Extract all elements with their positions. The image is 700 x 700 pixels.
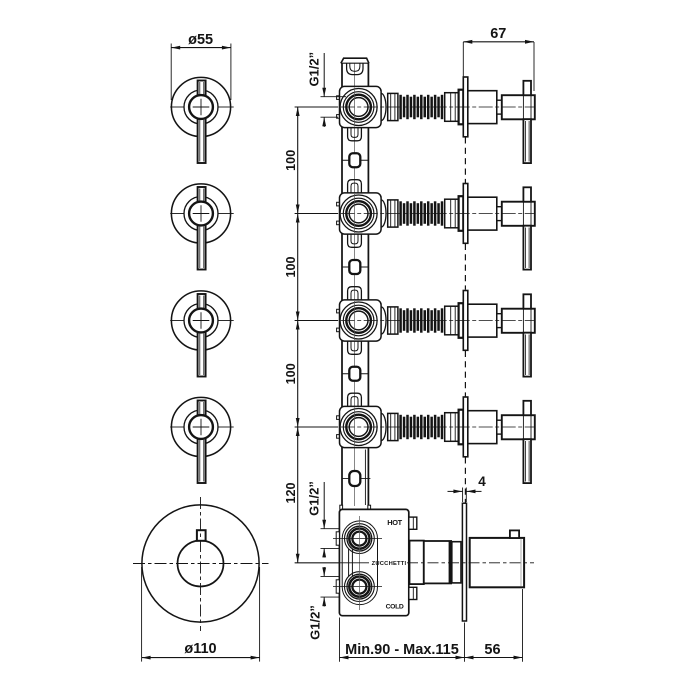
svg-text:G1/2”: G1/2”: [307, 605, 322, 640]
svg-text:ø55: ø55: [188, 32, 213, 48]
svg-text:120: 120: [284, 482, 298, 503]
svg-text:100: 100: [284, 363, 298, 384]
svg-text:G1/2”: G1/2”: [307, 481, 322, 516]
svg-text:HOT: HOT: [387, 518, 402, 527]
svg-text:G1/2”: G1/2”: [307, 52, 322, 87]
svg-text:100: 100: [284, 256, 298, 277]
svg-text:67: 67: [490, 26, 506, 42]
svg-text:COLD: COLD: [386, 604, 404, 611]
svg-text:100: 100: [284, 150, 298, 171]
svg-text:ø110: ø110: [184, 641, 216, 657]
svg-text:4: 4: [478, 474, 486, 489]
svg-text:ZUCCHETTI: ZUCCHETTI: [372, 561, 407, 567]
svg-text:Min.90 - Max.115: Min.90 - Max.115: [345, 642, 459, 658]
svg-text:56: 56: [484, 642, 500, 658]
